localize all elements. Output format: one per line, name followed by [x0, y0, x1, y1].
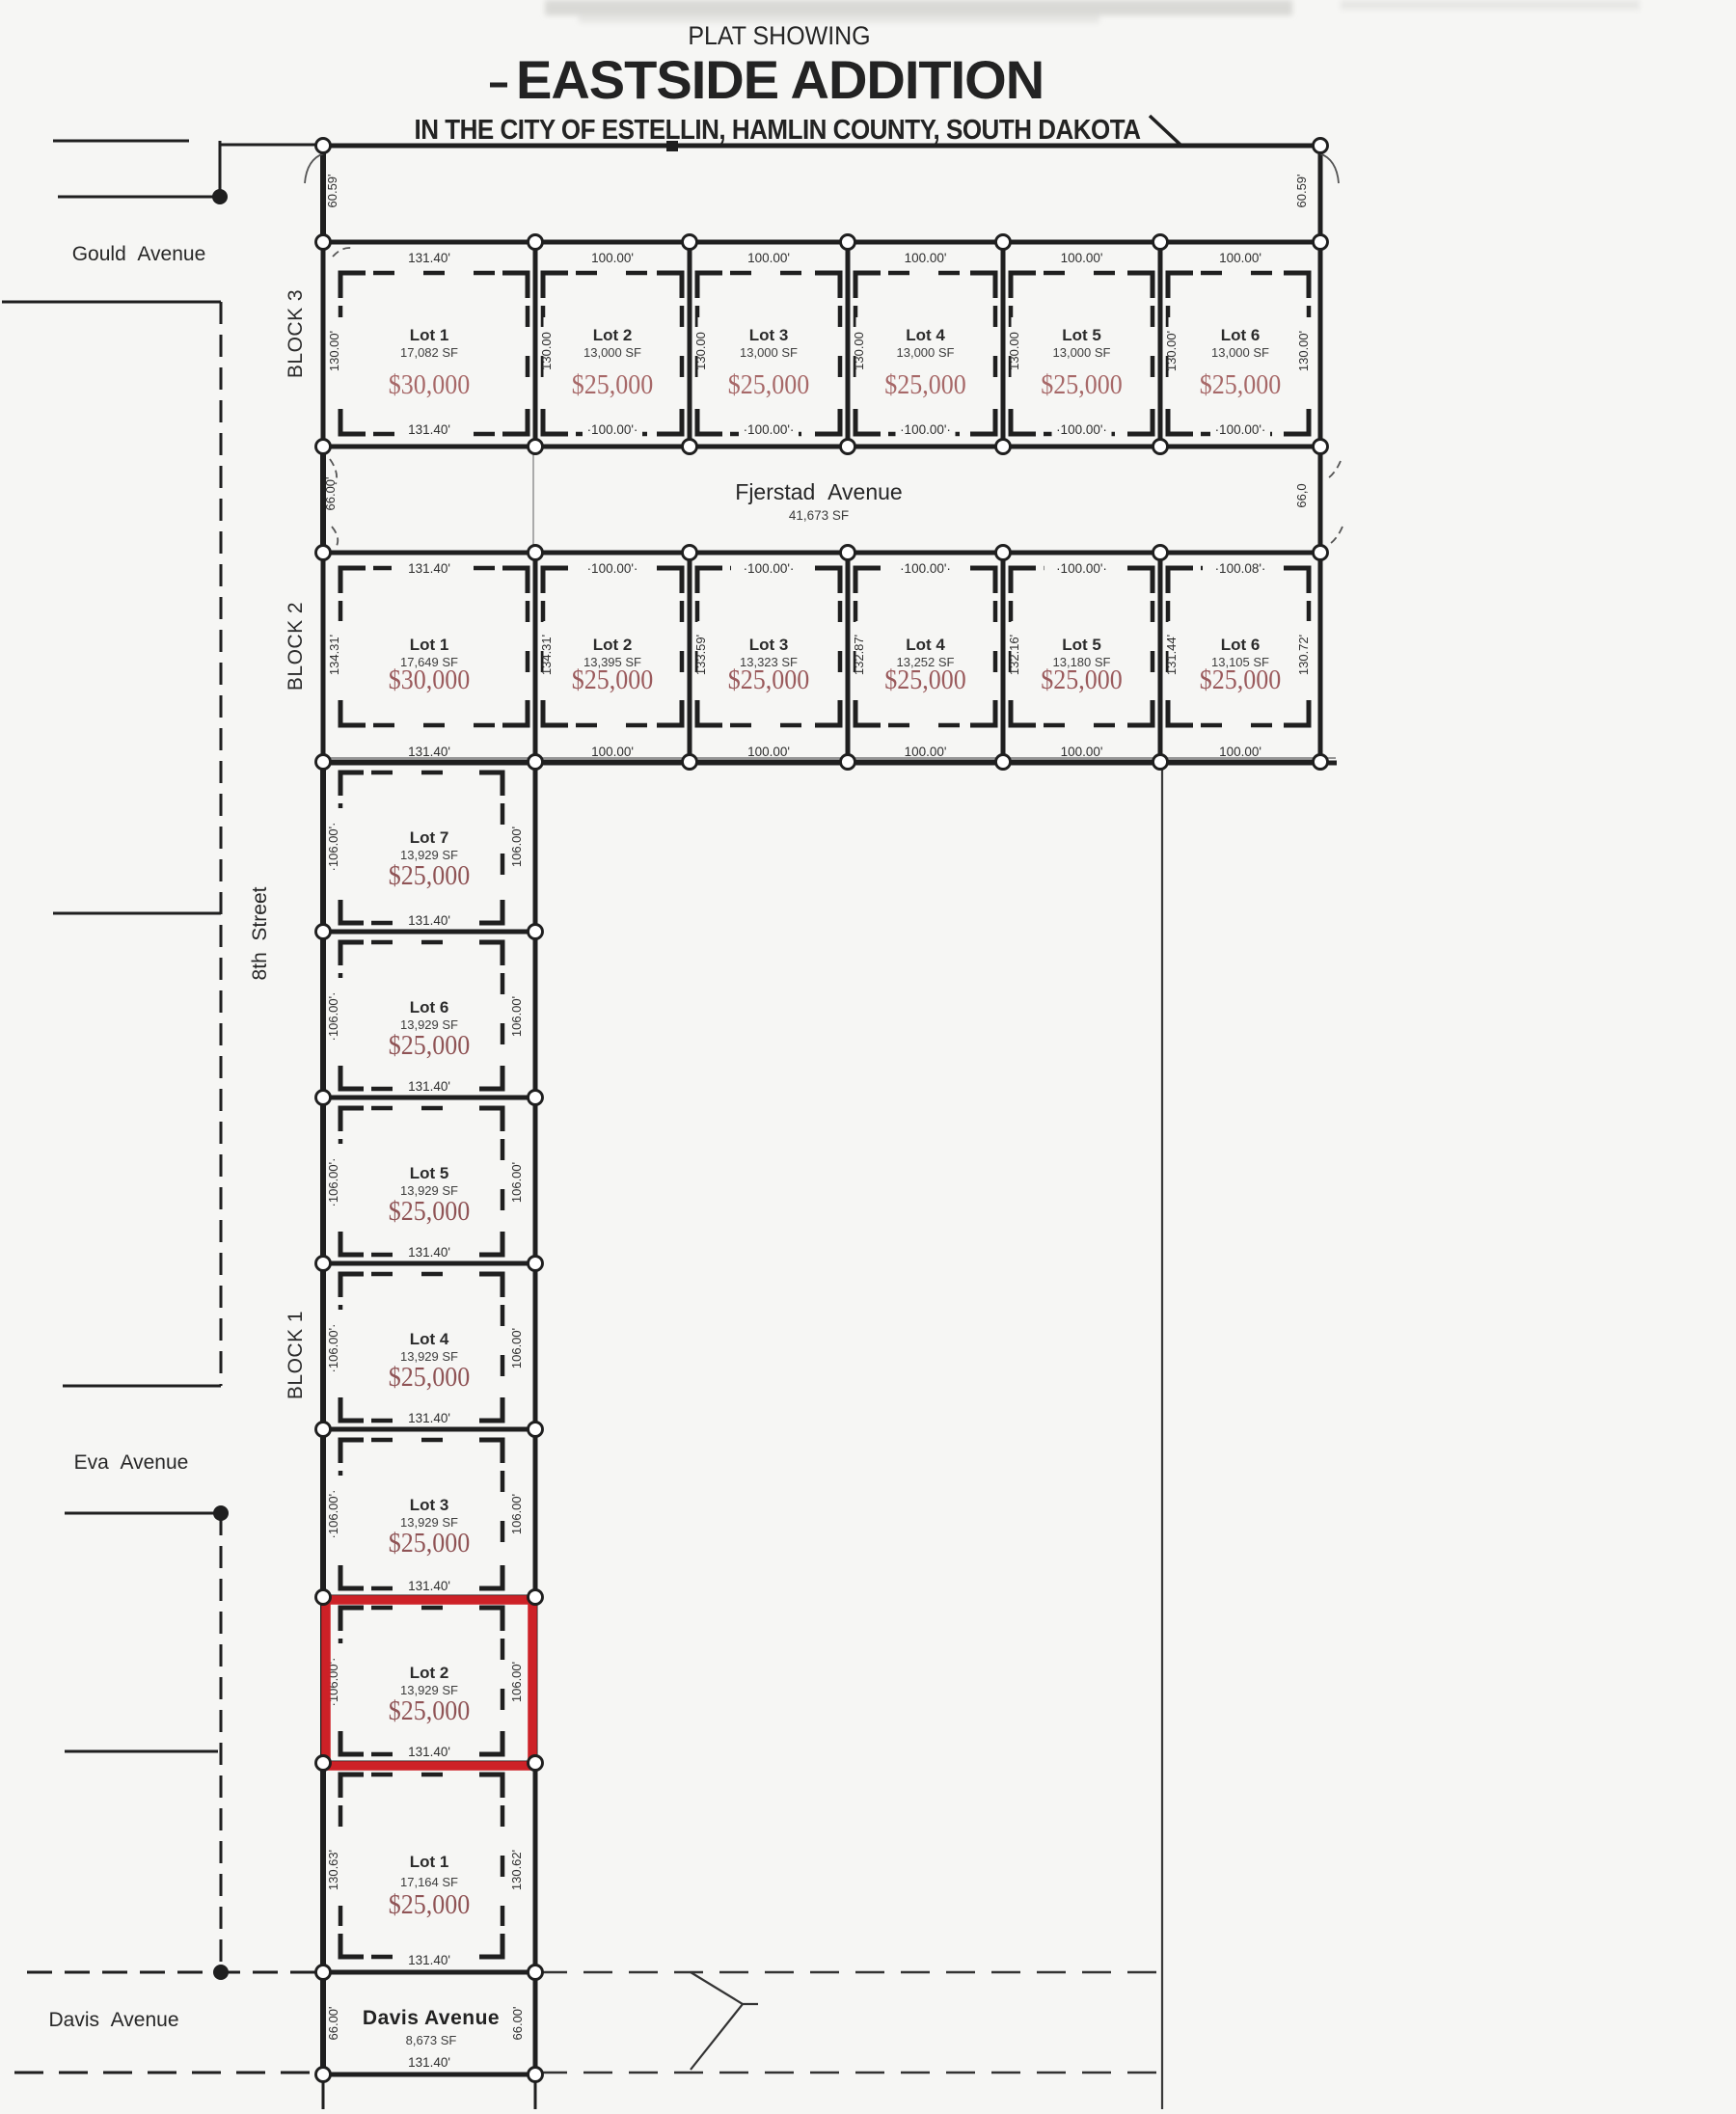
svg-text:$25,000: $25,000: [389, 1889, 471, 1919]
svg-text:133.59': 133.59': [693, 635, 708, 675]
svg-text:134.31': 134.31': [539, 635, 554, 675]
svg-text:$25,000: $25,000: [884, 369, 966, 399]
svg-text:Lot 3: Lot 3: [749, 636, 789, 654]
svg-text:Davis Avenue: Davis Avenue: [363, 2007, 500, 2029]
svg-text:66.00': 66.00': [510, 2006, 525, 2040]
svg-text:66.00': 66.00': [326, 2006, 340, 2040]
svg-text:Lot 1: Lot 1: [410, 326, 449, 344]
svg-text:Lot 5: Lot 5: [410, 1164, 449, 1182]
svg-text:131.40': 131.40': [408, 1245, 450, 1260]
svg-text:·100.00'·: ·100.00'·: [1056, 422, 1107, 437]
svg-text:134.31': 134.31': [327, 635, 341, 675]
svg-text:Lot 4: Lot 4: [906, 326, 945, 344]
svg-text:41,673 SF: 41,673 SF: [789, 508, 849, 523]
svg-text:106.00': 106.00': [509, 1662, 524, 1702]
svg-text:Lot 6: Lot 6: [1221, 636, 1261, 654]
svg-text:Eva Avenue: Eva Avenue: [74, 1451, 189, 1474]
svg-text:17,164 SF: 17,164 SF: [400, 1875, 458, 1889]
svg-text:106.00': 106.00': [509, 1162, 524, 1203]
svg-text:$30,000: $30,000: [389, 664, 471, 694]
svg-text:131.40': 131.40': [408, 2055, 450, 2070]
svg-text:131.40': 131.40': [408, 1411, 450, 1425]
svg-text:106.00': 106.00': [509, 1328, 524, 1369]
svg-text:·106.00'·: ·106.00'·: [326, 1324, 340, 1373]
svg-text:·106.00'·: ·106.00'·: [326, 823, 340, 872]
svg-text:17,082 SF: 17,082 SF: [400, 345, 458, 360]
svg-text:130.00: 130.00: [1007, 332, 1021, 370]
svg-text:·106.00'·: ·106.00'·: [326, 1158, 340, 1207]
svg-text:130.63': 130.63': [326, 1850, 340, 1890]
svg-text:130.00': 130.00': [327, 331, 341, 371]
svg-text:·100.00'·: ·100.00'·: [744, 422, 795, 437]
svg-text:·100.00'·: ·100.00'·: [1056, 561, 1107, 576]
svg-text:130.62': 130.62': [509, 1850, 524, 1890]
svg-text:130.00': 130.00': [1296, 331, 1311, 371]
svg-text:·106.00'·: ·106.00'·: [326, 992, 340, 1042]
svg-text:$25,000: $25,000: [572, 369, 654, 399]
svg-text:8th Street: 8th Street: [249, 886, 271, 980]
svg-text:$25,000: $25,000: [1041, 664, 1123, 694]
svg-text:Lot 2: Lot 2: [593, 636, 633, 654]
svg-text:130.00: 130.00: [539, 332, 554, 370]
svg-text:132.16': 132.16': [1007, 635, 1021, 675]
svg-text:Fjerstad Avenue: Fjerstad Avenue: [735, 479, 902, 504]
svg-text:BLOCK 2: BLOCK 2: [285, 602, 307, 691]
svg-text:60.59': 60.59': [1294, 174, 1309, 207]
svg-text:Lot 3: Lot 3: [410, 1496, 449, 1514]
svg-text:$25,000: $25,000: [389, 1695, 471, 1725]
svg-text:100.00': 100.00': [747, 745, 790, 759]
svg-text:Lot 2: Lot 2: [410, 1664, 449, 1682]
svg-text:$25,000: $25,000: [1200, 664, 1282, 694]
svg-text:·100.00'·: ·100.00'·: [1215, 422, 1266, 437]
svg-text:·106.00'·: ·106.00'·: [326, 1490, 340, 1539]
svg-text:·100.00'·: ·100.00'·: [744, 561, 795, 576]
svg-text:100.00': 100.00': [905, 745, 947, 759]
svg-text:Lot 2: Lot 2: [593, 326, 633, 344]
svg-text:131.40': 131.40': [408, 1745, 450, 1759]
svg-text:$25,000: $25,000: [389, 1362, 471, 1392]
svg-text:131.44': 131.44': [1164, 635, 1179, 675]
svg-text:Lot 5: Lot 5: [1062, 636, 1101, 654]
svg-text:Davis Avenue: Davis Avenue: [48, 2009, 178, 2031]
svg-text:$25,000: $25,000: [728, 369, 810, 399]
svg-text:Lot 1: Lot 1: [410, 1853, 449, 1871]
svg-text:131.40': 131.40': [408, 251, 450, 265]
svg-text:$30,000: $30,000: [389, 369, 471, 399]
svg-text:131.40': 131.40': [408, 745, 450, 759]
svg-text:$25,000: $25,000: [389, 1030, 471, 1060]
svg-text:$25,000: $25,000: [728, 664, 810, 694]
svg-text:13,000 SF: 13,000 SF: [1053, 345, 1111, 360]
svg-text:100.00': 100.00': [591, 745, 634, 759]
svg-text:IN THE CITY OF ESTELLIN, HAMLI: IN THE CITY OF ESTELLIN, HAMLIN COUNTY, …: [415, 114, 1142, 145]
svg-text:130.00: 130.00: [693, 332, 708, 370]
svg-text:EASTSIDE ADDITION: EASTSIDE ADDITION: [516, 49, 1044, 110]
svg-text:BLOCK 1: BLOCK 1: [285, 1311, 307, 1399]
svg-text:$25,000: $25,000: [572, 664, 654, 694]
svg-text:$25,000: $25,000: [884, 664, 966, 694]
svg-text:131.40': 131.40': [408, 422, 450, 437]
svg-text:100.00': 100.00': [1061, 745, 1103, 759]
svg-text:60.59': 60.59': [325, 174, 339, 207]
svg-text:66.00': 66.00': [323, 476, 338, 510]
svg-text:13,000 SF: 13,000 SF: [897, 345, 955, 360]
svg-text:100.00': 100.00': [1219, 251, 1261, 265]
svg-text:106.00': 106.00': [509, 1494, 524, 1534]
svg-text:66,0: 66,0: [1294, 483, 1309, 507]
svg-text:130.00: 130.00: [852, 332, 866, 370]
svg-text:Lot 4: Lot 4: [410, 1330, 449, 1348]
svg-text:Lot 4: Lot 4: [906, 636, 945, 654]
svg-text:131.40': 131.40': [408, 1579, 450, 1593]
svg-text:131.40': 131.40': [408, 1079, 450, 1094]
svg-text:100.00': 100.00': [747, 251, 790, 265]
svg-text:100.00': 100.00': [591, 251, 634, 265]
svg-text:PLAT SHOWING: PLAT SHOWING: [688, 20, 870, 50]
svg-text:$25,000: $25,000: [1041, 369, 1123, 399]
svg-text:100.00': 100.00': [905, 251, 947, 265]
svg-text:130.72': 130.72': [1296, 635, 1311, 675]
svg-text:Gould Avenue: Gould Avenue: [72, 243, 206, 265]
svg-text:Lot 6: Lot 6: [410, 998, 449, 1016]
svg-text:Lot 7: Lot 7: [410, 828, 449, 847]
svg-text:·100.00'·: ·100.00'·: [900, 422, 951, 437]
svg-text:13,000 SF: 13,000 SF: [583, 345, 641, 360]
svg-text:·100.00'·: ·100.00'·: [587, 422, 638, 437]
svg-text:Lot 5: Lot 5: [1062, 326, 1101, 344]
svg-text:$25,000: $25,000: [1200, 369, 1282, 399]
svg-text:131.40': 131.40': [408, 1953, 450, 1967]
svg-text:Lot 3: Lot 3: [749, 326, 789, 344]
svg-text:106.00': 106.00': [509, 996, 524, 1037]
svg-text:Lot 1: Lot 1: [410, 636, 449, 654]
svg-text:131.40': 131.40': [408, 561, 450, 576]
svg-text:$25,000: $25,000: [389, 1528, 471, 1558]
svg-text:131.40': 131.40': [408, 913, 450, 928]
svg-text:$25,000: $25,000: [389, 860, 471, 890]
svg-text:130.00': 130.00': [1164, 331, 1179, 371]
svg-text:8,673 SF: 8,673 SF: [406, 2033, 457, 2047]
svg-text:$25,000: $25,000: [389, 1196, 471, 1226]
svg-text:13,000 SF: 13,000 SF: [740, 345, 798, 360]
svg-text:100.00': 100.00': [1061, 251, 1103, 265]
svg-text:Lot 6: Lot 6: [1221, 326, 1261, 344]
svg-text:·100.00'·: ·100.00'·: [900, 561, 951, 576]
svg-text:13,000 SF: 13,000 SF: [1211, 345, 1269, 360]
svg-text:·100.00'·: ·100.00'·: [587, 561, 638, 576]
svg-text:106.00': 106.00': [509, 827, 524, 867]
svg-text:132.87': 132.87': [852, 635, 866, 675]
svg-text:100.00': 100.00': [1219, 745, 1261, 759]
svg-text:BLOCK 3: BLOCK 3: [285, 289, 307, 378]
svg-text:·100.08'·: ·100.08'·: [1215, 561, 1266, 576]
